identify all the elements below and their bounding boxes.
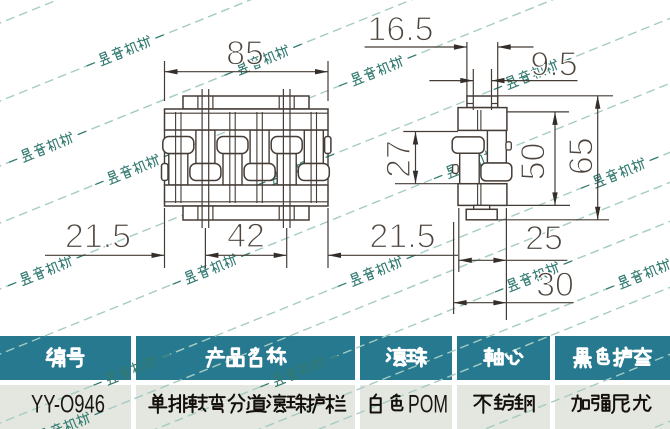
svg-text:85: 85	[226, 35, 264, 73]
svg-text:25: 25	[525, 220, 563, 258]
svg-text:21.5: 21.5	[369, 217, 435, 255]
svg-text:42: 42	[227, 217, 265, 255]
svg-text:POM: POM	[408, 391, 448, 419]
svg-text:21.5: 21.5	[65, 217, 131, 255]
svg-text:65: 65	[562, 137, 600, 175]
svg-text:YY-O946: YY-O946	[31, 391, 105, 419]
svg-text:16.5: 16.5	[367, 11, 433, 49]
svg-text:30: 30	[536, 266, 574, 304]
svg-text:9.5: 9.5	[530, 46, 577, 84]
svg-text:50: 50	[515, 143, 553, 181]
svg-text:27: 27	[380, 140, 418, 178]
